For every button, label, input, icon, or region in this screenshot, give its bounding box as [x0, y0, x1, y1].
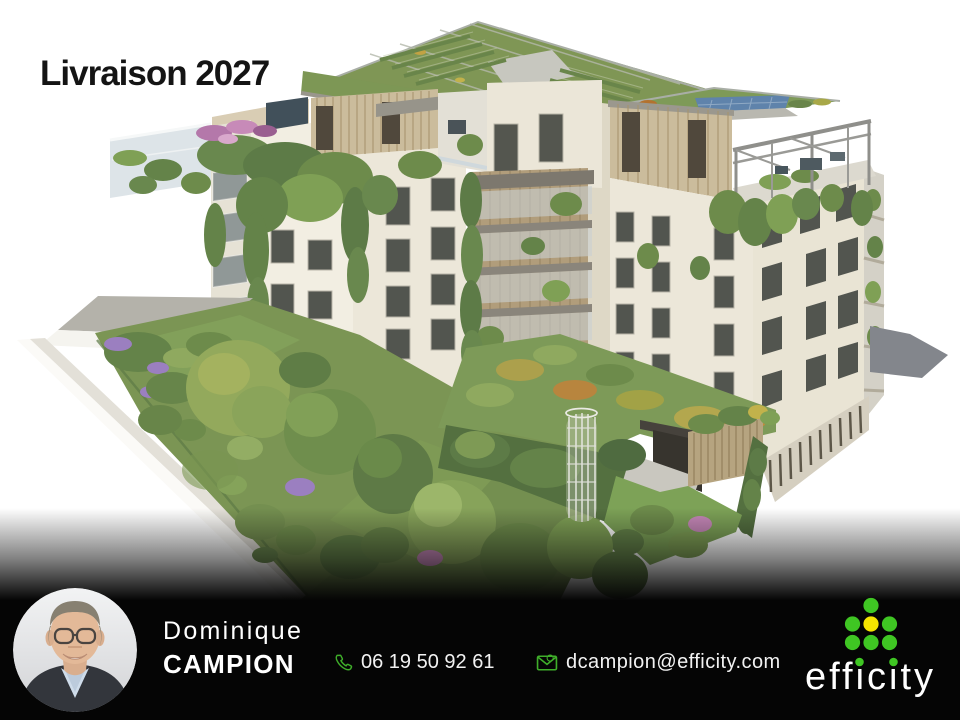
svg-text:efficity: efficity	[805, 656, 936, 698]
